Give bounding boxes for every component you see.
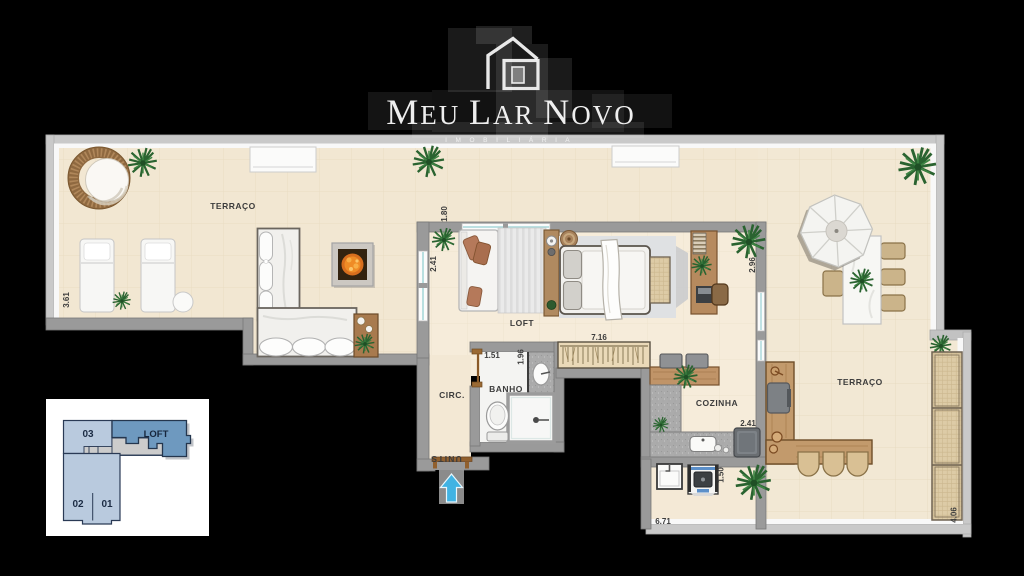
svg-text:TERRAÇO: TERRAÇO xyxy=(210,201,256,211)
svg-text:4.06: 4.06 xyxy=(950,507,959,523)
svg-text:1.51: 1.51 xyxy=(484,351,500,360)
svg-text:BANHO: BANHO xyxy=(489,384,523,394)
svg-text:UNITS: UNITS xyxy=(430,454,462,464)
svg-text:COZINHA: COZINHA xyxy=(696,398,738,408)
svg-text:3.61: 3.61 xyxy=(62,292,71,308)
svg-text:TERRAÇO: TERRAÇO xyxy=(837,377,883,387)
svg-text:LOFT: LOFT xyxy=(144,429,169,440)
svg-text:2.41: 2.41 xyxy=(740,419,756,428)
svg-text:02: 02 xyxy=(72,499,84,510)
svg-text:1.50: 1.50 xyxy=(717,467,726,483)
svg-text:LOFT: LOFT xyxy=(510,318,534,328)
svg-text:2.96: 2.96 xyxy=(748,257,757,273)
svg-text:6.71: 6.71 xyxy=(655,517,671,526)
svg-text:I M O B I L I Á R I A: I M O B I L I Á R I A xyxy=(445,135,573,144)
svg-text:1.96: 1.96 xyxy=(517,349,526,365)
svg-text:1.80: 1.80 xyxy=(440,206,449,222)
svg-text:01: 01 xyxy=(101,499,113,510)
svg-text:2.41: 2.41 xyxy=(429,256,438,272)
svg-text:03: 03 xyxy=(82,429,94,440)
svg-text:CIRC.: CIRC. xyxy=(439,390,465,400)
svg-text:7.16: 7.16 xyxy=(591,333,607,342)
